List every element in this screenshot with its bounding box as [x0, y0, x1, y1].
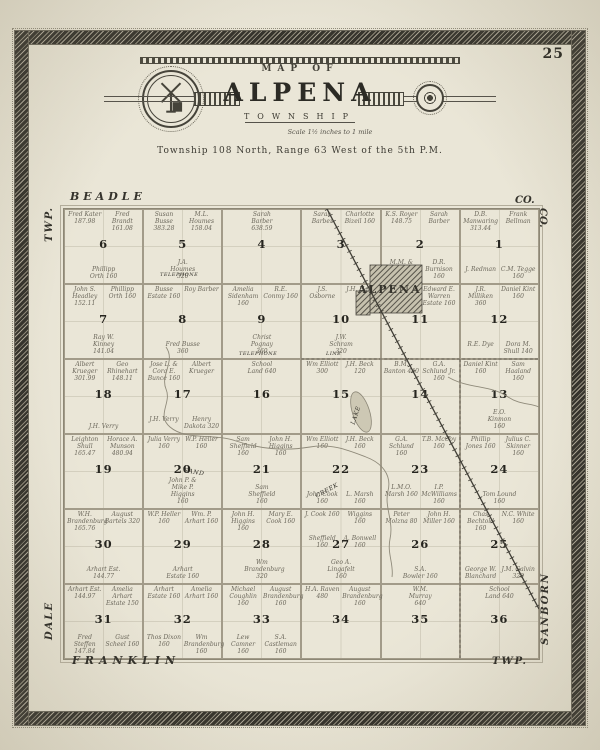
owner-label: Chas Bechtold 160 — [463, 512, 498, 533]
owner-label: School Land 640 — [244, 362, 279, 376]
owner-label: N.C. White 160 — [501, 512, 536, 533]
section-number: 8 — [144, 314, 221, 326]
owner-label: R.E. Conmy 160 — [263, 287, 298, 308]
owner-label: August Brandenburg 160 — [263, 587, 298, 608]
legal-description: Township 108 North, Range 63 West of the… — [0, 146, 600, 156]
owner-label: H.A. Raven 480 — [305, 587, 340, 608]
owner-label: J.H. Hale — [342, 287, 377, 301]
owner-label: E.O. Kinmon 160 — [482, 410, 517, 431]
owner-label: W.H. Brandenburg 165.76 — [67, 512, 102, 533]
section-number: 28 — [223, 539, 300, 551]
owner-label: J.A. Houmes 320 — [165, 260, 200, 281]
section-number: 4 — [223, 239, 300, 251]
section-number: 10 — [302, 314, 379, 326]
owner-label: Horace A. Munson 480.94 — [105, 437, 140, 458]
owner-label: C.M. Tegge 160 — [501, 267, 536, 281]
edge-label-twp-left: TWP. — [44, 206, 55, 242]
owner-label: Geo A. Lingafelt 160 — [323, 560, 358, 581]
owner-label: Amelia Arhart 160 — [184, 587, 219, 601]
section-number: 19 — [65, 464, 142, 476]
section-27: J. Cook 160Wiggins 160Sheffield 160A. Bo… — [301, 509, 380, 584]
owner-label: George W. Blanchard — [463, 567, 498, 581]
edge-label-sanborn: SANBORN — [540, 572, 551, 645]
section-9: Amelia Sidenham 160R.E. Conmy 160Christ … — [222, 284, 301, 359]
owner-label: Mary E. Cook 160 — [263, 512, 298, 533]
owner-label: Geo Rhinehart 148.11 — [105, 362, 140, 383]
owner-label: M.L. Houmes 158.04 — [184, 212, 219, 233]
plat-map: Fred Kater 187.98Fred Brandt 161.08Phill… — [63, 208, 540, 660]
section-number: 36 — [461, 614, 538, 626]
owner-label: Sam Haaland 160 — [501, 362, 536, 383]
owner-label: I.P. McWilliams 160 — [421, 485, 456, 506]
section-12: J.R. Milliken 360Daniel Kint 160R.E. Dye… — [460, 284, 539, 359]
owner-label: John S. Headley 152.11 — [67, 287, 102, 308]
owner-label: John Cook 160 — [305, 492, 340, 506]
rosette-ornament — [416, 84, 444, 112]
township-title: ALPENA — [0, 78, 600, 107]
section-17: Jose L. & Cora E. Bunce 160Albert Kruege… — [143, 359, 222, 434]
owner-label: Sarah Barber — [305, 212, 340, 226]
section-24: Phillip Jones 160Julius C. Skinner 160To… — [460, 434, 539, 509]
owner-label: August Brandenburg 160 — [342, 587, 377, 608]
section-1: D.B. Manwaring 313.44Frank BellmanJ. Red… — [460, 209, 539, 284]
section-2: K.S. Royer 148.75Sarah BarberM.M. & Anne… — [381, 209, 460, 284]
section-7: John S. Headley 152.11Phillipp Orth 160R… — [64, 284, 143, 359]
owner-label: Wm Brandenburg 160 — [184, 635, 219, 656]
owner-label: Phillip Jones 160 — [463, 437, 498, 458]
owner-label: Wm. P. Arhart 160 — [184, 512, 219, 526]
owner-label: Roy Barber — [184, 287, 219, 301]
owner-label: Tom Lound 160 — [482, 492, 517, 506]
owner-label: Sarah Barber 638.59 — [244, 212, 279, 233]
owner-label: Albert Krueger — [184, 362, 219, 383]
owner-label: Busse Estate 160 — [146, 287, 181, 301]
owner-label: Leighton Shull 165.47 — [67, 437, 102, 458]
owner-label: Jose L. & Cora E. Bunce 160 — [146, 362, 181, 383]
owner-label: Amelia Arhart Estate 150 — [105, 587, 140, 608]
section-16: School Land 64016 — [222, 359, 301, 434]
section-5: Susan Busse 383.28M.L. Houmes 158.04J.A.… — [143, 209, 222, 284]
subtitle-rule — [245, 122, 355, 125]
owner-label: John H. Higgins 160 — [263, 437, 298, 458]
owner-label: J.W. Schram 320 — [323, 335, 358, 356]
section-8: Busse Estate 160Roy BarberFred Busse 360… — [143, 284, 222, 359]
section-grid: Fred Kater 187.98Fred Brandt 161.08Phill… — [64, 209, 539, 659]
section-number: 11 — [382, 314, 459, 326]
section-number: 23 — [382, 464, 459, 476]
section-number: 29 — [144, 539, 221, 551]
owner-label: Fred Kater 187.98 — [67, 212, 102, 233]
owner-label: Phillipp Orth 160 — [86, 267, 121, 281]
section-number: 5 — [144, 239, 221, 251]
border-band-top — [15, 31, 585, 44]
owner-label: Charlotte Bizeil 160 — [342, 212, 377, 226]
owner-label: J.H. Verry — [86, 424, 121, 431]
section-number: 12 — [461, 314, 538, 326]
owner-label: Peter Molzna 80 — [384, 512, 419, 526]
owner-label: J.R. Milliken 360 — [463, 287, 498, 308]
section-number: 18 — [65, 389, 142, 401]
owner-label: Frank Bellman — [501, 212, 536, 233]
owner-label: W.P. Heller 160 — [184, 437, 219, 451]
owner-label: J.H. Verry — [146, 417, 181, 431]
section-34: H.A. Raven 480August Brandenburg 16034 — [301, 584, 380, 659]
owner-label: T.B. McCoy 160 — [421, 437, 456, 458]
owner-label: John H. Miller 160 — [421, 512, 456, 526]
section-number: 7 — [65, 314, 142, 326]
owner-label: Arhart Est. 144.97 — [67, 587, 102, 608]
section-21: Sam Sheffield 160John H. Higgins 160Sam … — [222, 434, 301, 509]
section-number: 32 — [144, 614, 221, 626]
page-number: 25 — [543, 46, 564, 62]
section-number: 25 — [461, 539, 538, 551]
section-32: Arhart Estate 160Amelia Arhart 160Thos D… — [143, 584, 222, 659]
edge-label-dale: DALE — [44, 601, 55, 640]
owner-label: August Bartels 320 — [105, 512, 140, 533]
owner-label: Fred Steffen 147.84 — [67, 635, 102, 656]
owner-label: Henry Dakota 320 — [184, 417, 219, 431]
atlas-page: 25 MAP OF ALPENA TOWNSHIP Scale 1½ inche… — [0, 0, 600, 750]
owner-label: Albert Krueger 301.99 — [67, 362, 102, 383]
owner-label: Daniel Kint 160 — [501, 287, 536, 308]
owner-label: Wm Elliott 300 — [305, 362, 340, 376]
section-number: 30 — [65, 539, 142, 551]
section-29: W.P. Heller 160Wm. P. Arhart 160Arhart E… — [143, 509, 222, 584]
owner-label: Wm Elliott 160 — [305, 437, 340, 451]
owner-label: J.S. Osborne — [305, 287, 340, 301]
section-number: 15 — [302, 389, 379, 401]
owner-label: Phillipp Orth 160 — [105, 287, 140, 308]
owner-label: R.E. Dye — [463, 342, 498, 356]
section-20: Julia Verry 160W.P. Heller 160John P. & … — [143, 434, 222, 509]
section-number: 24 — [461, 464, 538, 476]
owner-label: S.A. Castleman 160 — [263, 635, 298, 656]
section-15: Wm Elliott 300J.H. Beck 12015 — [301, 359, 380, 434]
owner-label: J.H. Beck 160 — [342, 437, 377, 451]
owner-label: Wiggins 160 — [342, 512, 377, 526]
owner-label: M.M. & Anne Burnison — [384, 260, 419, 281]
section-number: 27 — [302, 539, 379, 551]
owner-label: Edward E. Warren Estate 160 — [421, 287, 456, 308]
owner-label: Daniel Kint 160 — [384, 287, 419, 308]
section-35: W.M. Murray 64035 — [381, 584, 460, 659]
section-23: G.A. Schlund 160T.B. McCoy 160L.M.O. Mar… — [381, 434, 460, 509]
owner-label: Ray W. Kinney 141.04 — [86, 335, 121, 356]
border-band-left — [15, 31, 28, 725]
owner-label: Sam Sheffield 160 — [225, 437, 260, 458]
edge-label-franklin: FRANKLIN — [72, 654, 180, 667]
section-25: Chas Bechtold 160N.C. White 160George W.… — [460, 509, 539, 584]
section-number: 31 — [65, 614, 142, 626]
section-number: 3 — [302, 239, 379, 251]
owner-label: Susan Busse 383.28 — [146, 212, 181, 233]
owner-label: W.M. Murray 640 — [403, 587, 438, 608]
owner-label: Lew Camner 160 — [225, 635, 260, 656]
owner-label: W.P. Heller 160 — [146, 512, 181, 526]
owner-label: J. Redman — [463, 267, 498, 281]
owner-label: Daniel Kint 160 — [463, 362, 498, 383]
section-number: 2 — [382, 239, 459, 251]
section-33: Michael Coughlin 160August Brandenburg 1… — [222, 584, 301, 659]
section-19: Leighton Shull 165.47Horace A. Munson 48… — [64, 434, 143, 509]
owner-label: Gust Scheel 160 — [105, 635, 140, 656]
title-ornament-strip — [140, 57, 460, 64]
section-30: W.H. Brandenburg 165.76August Bartels 32… — [64, 509, 143, 584]
owner-label: D.B. Manwaring 313.44 — [463, 212, 498, 233]
owner-label: G.A. Schlund 160 — [384, 437, 419, 458]
section-26: Peter Molzna 80John H. Miller 160S.A. Bo… — [381, 509, 460, 584]
owner-label: John H. Higgins 160 — [225, 512, 260, 533]
section-number: 26 — [382, 539, 459, 551]
owner-label: Wm Brandenburg 320 — [244, 560, 279, 581]
owner-label: Sarah Barber — [421, 212, 456, 226]
owner-label: J.H. Beck 120 — [342, 362, 377, 376]
edge-label-beadle: BEADLE — [70, 190, 146, 203]
edge-label-co-top: CO. — [515, 195, 535, 206]
owner-label: Fred Busse 360 — [165, 342, 200, 356]
owner-label: Christ Pognay 360 — [244, 335, 279, 356]
section-number: 35 — [382, 614, 459, 626]
owner-label: B.M. Banton 440 — [384, 362, 419, 383]
owner-label: D.R. Burnison 160 — [421, 260, 456, 281]
owner-label: S.A. Bowler 160 — [403, 567, 438, 581]
township-subtitle: TOWNSHIP — [0, 112, 600, 121]
section-number: 34 — [302, 614, 379, 626]
owner-label: Fred Brandt 161.08 — [105, 212, 140, 233]
owner-label: Julius C. Skinner 160 — [501, 437, 536, 458]
owner-label: Arhart Estate 160 — [146, 587, 181, 601]
edge-label-twp-bottom: TWP. — [492, 656, 528, 667]
section-number: 16 — [223, 389, 300, 401]
section-number: 9 — [223, 314, 300, 326]
owner-label: L. Marsh 160 — [342, 492, 377, 506]
section-14: B.M. Banton 440G.A. Schlund Jr. 16014 — [381, 359, 460, 434]
section-number: 6 — [65, 239, 142, 251]
owner-label: K.S. Royer 148.75 — [384, 212, 419, 226]
section-28: John H. Higgins 160Mary E. Cook 160Wm Br… — [222, 509, 301, 584]
owner-label: J.M. Galvin 320 — [501, 567, 536, 581]
section-number: 13 — [461, 389, 538, 401]
owner-label: Sam Sheffield 160 — [244, 485, 279, 506]
owner-label: Dora M. Shull 140 — [501, 342, 536, 356]
section-number: 22 — [302, 464, 379, 476]
section-18: Albert Krueger 301.99Geo Rhinehart 148.1… — [64, 359, 143, 434]
section-11: Daniel Kint 160Edward E. Warren Estate 1… — [381, 284, 460, 359]
edge-label-co-right: CO. — [537, 208, 548, 228]
owner-label: Amelia Sidenham 160 — [225, 287, 260, 308]
scale-note: Scale 1½ inches to 1 mile — [60, 128, 600, 136]
section-number: 21 — [223, 464, 300, 476]
section-36: School Land 64036 — [460, 584, 539, 659]
owner-label: Arhart Est. 144.77 — [86, 567, 121, 581]
section-3: Sarah BarberCharlotte Bizeil 1603 — [301, 209, 380, 284]
section-10: J.S. OsborneJ.H. HaleJ.W. Schram 32010 — [301, 284, 380, 359]
section-22: Wm Elliott 160J.H. Beck 160John Cook 160… — [301, 434, 380, 509]
section-number: 20 — [144, 464, 221, 476]
section-number: 17 — [144, 389, 221, 401]
section-6: Fred Kater 187.98Fred Brandt 161.08Phill… — [64, 209, 143, 284]
section-4: Sarah Barber 638.594 — [222, 209, 301, 284]
owner-label: Thos Dixon 160 — [146, 635, 181, 656]
owner-label: John P. & Mike P. Higgins 160 — [165, 478, 200, 506]
owner-label: Michael Coughlin 160 — [225, 587, 260, 608]
title-map-of: MAP OF — [0, 64, 600, 74]
owner-label: J. Cook 160 — [305, 512, 340, 526]
owner-label: Julia Verry 160 — [146, 437, 181, 451]
section-31: Arhart Est. 144.97Amelia Arhart Estate 1… — [64, 584, 143, 659]
owner-label: L.M.O. Marsh 160 — [384, 485, 419, 506]
owner-label: Arhart Estate 160 — [165, 567, 200, 581]
owner-label: G.A. Schlund Jr. 160 — [421, 362, 456, 383]
section-number: 14 — [382, 389, 459, 401]
border-band-bottom — [15, 712, 585, 725]
section-13: Daniel Kint 160Sam Haaland 160E.O. Kinmo… — [460, 359, 539, 434]
section-number: 33 — [223, 614, 300, 626]
owner-label: School Land 640 — [482, 587, 517, 601]
section-number: 1 — [461, 239, 538, 251]
